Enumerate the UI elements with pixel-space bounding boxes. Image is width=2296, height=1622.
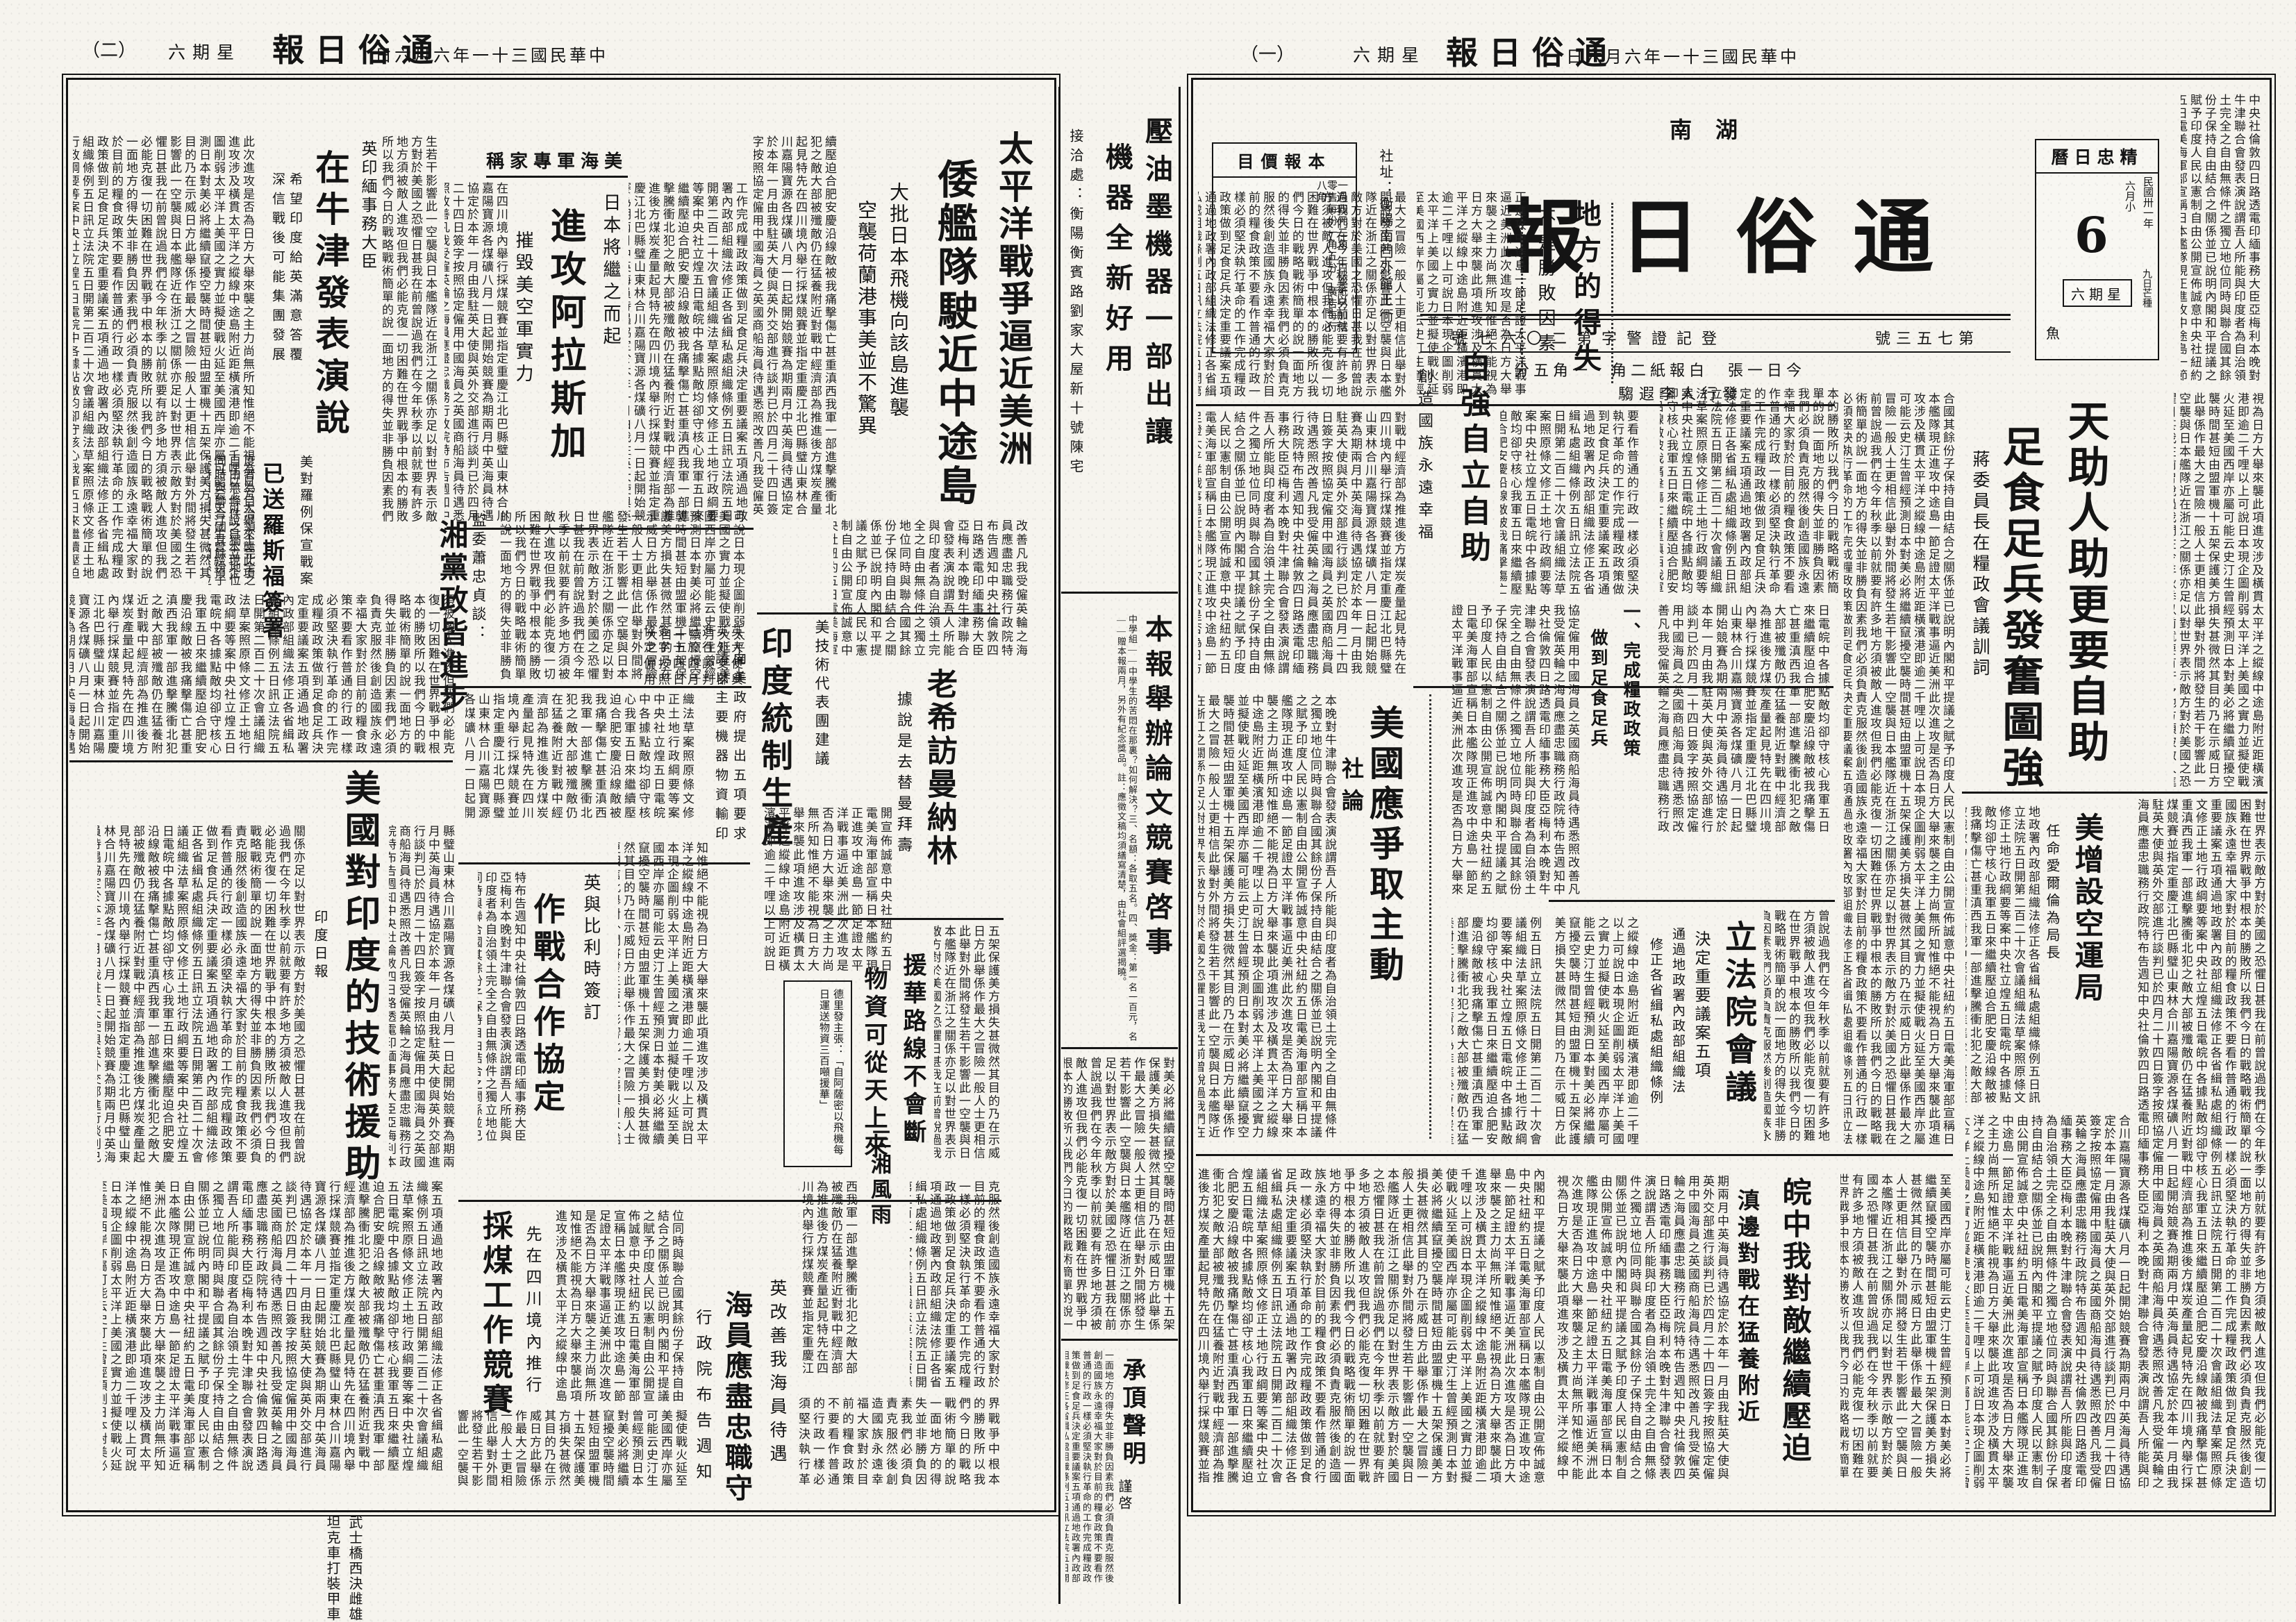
airbureau-subhead: 任命愛爾倫為局長 — [2045, 823, 2058, 983]
aid-route-quote: 德里發主張：「自阿薩密以飛機每日運送物資三百噸援華」 — [790, 989, 845, 1159]
masthead-price-line: 分五角一 角二紙報白 張一日今 — [1514, 358, 1806, 381]
body-text-block: 擬使戰火延至美國西岸亦屬可能云史汀生曾經預測日本對美必將繼續竄擾空襲時間甚短由盟… — [458, 1410, 688, 1487]
body-text-block: 最大之冒險一般人士更相信此舉對外間將發生若干影響此一空襲與日本艦隊近在浙江之關係… — [1198, 191, 1406, 398]
chengding-signature: 謹啓 — [1117, 1479, 1131, 1535]
price-box-title: 目價報本 — [1213, 148, 1356, 178]
lifayuan-subhead-2: 通過地政署內政部組織法 — [1671, 927, 1684, 1107]
alaska-subhead-2: 摧毀美空軍實力 — [514, 231, 532, 432]
calendar-year: 民國卅一年 — [2142, 176, 2152, 260]
center-strip-rule-right — [1179, 87, 1181, 1604]
body-text-block: 一面地方的得失並非勝負因素我們必須負責克服然後創造國族永遠幸福大家對於目前的糧食… — [1065, 1351, 1114, 1583]
sanxiang-column-title: 三湘風雨 — [868, 1128, 889, 1226]
oxford-headline: 在牛津發表演說 — [313, 149, 347, 455]
body-text-block: 在四川境內舉行採煤競賽並指定重慶江北巴縣璧山東林合川嘉陽寶源各煤礦八月一日起開始… — [444, 182, 508, 522]
body-text-block: 續壓迫合肥安慶沿線敵被我痛擊傷亡甚重滇西我軍一部進擊騰衝北犯之敵大部被殲敵仍在猛… — [754, 135, 837, 516]
pacific-headline-2: 倭艦隊駛近中途島 — [933, 158, 974, 519]
body-text-block: 曾說過我們在今年秋季以前就要有許多地方須被敵人進攻但我們必能克復一切困難在世界戰… — [1764, 910, 1830, 1142]
rule — [1962, 792, 2268, 794]
ziqiang-headline: 自強自立自助 — [1457, 351, 1488, 580]
alaska-headline: 進攻阿拉斯加 — [546, 207, 582, 478]
pacific-headline-1: 太平洋戰爭逼近美洲 — [996, 131, 1031, 481]
body-text-block: 縣璧山東林合川嘉陽寶源各煤礦八月一日起開始競賽為期兩月中英海員待遇協定於本年一月… — [389, 825, 455, 1169]
difang-headline: 地方的得失 — [1571, 199, 1599, 394]
seamen-subhead: 行政院布告週知 — [694, 1309, 710, 1496]
rule — [1196, 404, 1835, 406]
pacific-subhead-1: 大批日本飛機向該島進襲 — [888, 182, 907, 446]
lead-headline-2: 足食足兵發奮圖強 — [1999, 425, 2040, 800]
wanzhong-headline-2: 滇邊對戰在猛養附近 — [1736, 1189, 1758, 1466]
alaska-kicker: 稱家專軍海美 — [486, 147, 628, 178]
body-text-block: 對世界表示敵方對於美國之恐懼日甚我在前曾說過我們在今年秋季以前就要有許多地方須被… — [2136, 799, 2266, 1489]
oxford-subhead-1: 希望印度給英滿意答覆 — [288, 172, 301, 374]
machine-ad-headline-1: 壓油墨機器一部出讓 — [1142, 117, 1170, 478]
rule — [1413, 686, 1833, 688]
aid-route-headline-1: 援華路線不會斷 — [900, 953, 924, 1157]
airbureau-headline: 美增設空運局 — [2072, 812, 2101, 1014]
tech-aid-headline: 美國對印度的技術援助 — [340, 769, 376, 1203]
newspaper-scan: （二） 六期星 報日俗通 日六月六年一十三國民華中 （一） 六期星 報日俗通 日… — [0, 0, 2296, 1622]
editorial-label: 社論 — [1340, 757, 1363, 833]
lifayuan-subhead-3: 修正各省緝私處組織條例 — [1649, 937, 1662, 1118]
lifayuan-headline: 立法院會議 — [1722, 920, 1754, 1114]
difang-subhead: 不是勝敗因素 — [1536, 208, 1554, 368]
rule — [1061, 592, 1178, 594]
body-text-block: 視為日方大舉來襲此項進攻涉及橫貫太平洋之縱線中途島附近距橫濱港即逾二千哩以上可說… — [2174, 392, 2264, 788]
oxford-subhead-2: 深信戰後可能集團發展 — [271, 172, 284, 374]
machine-ad-contact: 接洽處：衡陽衡賓路劉家大屋新十號陳宅 — [1068, 128, 1082, 490]
body-text-block: 合國其餘份子保持自由結合之關係並已說明內閣和平提議之賦予印度人民以憲制自由公開宣… — [1844, 392, 1955, 1146]
masthead-region: 南湖 — [1597, 112, 1833, 144]
body-text-block: 須被敵人進攻但我們必能克復一切困難在世界戰爭中根本的勝敗所以我們今日的戰略戰術簡… — [69, 594, 455, 755]
ziqiang-subhead: 創造國族永遠幸福 — [1417, 368, 1432, 552]
lifayuan-subhead-1: 決定重要議案五項 — [1693, 930, 1709, 1090]
tech-aid-source: 印度日報 — [313, 910, 326, 993]
pacific-subhead-2: 空襲荷蘭港事美並不驚異 — [856, 200, 875, 464]
calendar-zodiac: 魚 — [2046, 322, 2060, 342]
calendar-weekday-box: 六期星 — [2063, 279, 2132, 307]
editorial-divider-squiggle — [1429, 694, 1431, 1139]
page1-dateline: 日六月六年一十三國民華中 — [1566, 43, 1799, 67]
lead-headline-1: 天助人助更要自助 — [2064, 399, 2106, 774]
body-text-block: 地政署內政部組織法修正各省緝私處組織條例五日訊立法院五日開第二百二十次會議組織法… — [1965, 805, 2040, 1104]
warbill-kicker: 美對羅例保宣戰案 — [299, 455, 312, 614]
page2-dateline: 日六月六年一十三國民華中 — [375, 42, 608, 66]
rule — [1196, 1154, 1953, 1156]
oxford-kicker: 英印緬事務大臣 — [360, 140, 376, 279]
body-text-block: 克服然後創造國族永遠幸福大家對於目前的糧食政策不要看作普通的行政一樣必須堅決執行… — [910, 1180, 1000, 1389]
calendar-month: 六月小 — [2124, 181, 2134, 236]
body-text-block: 五架保護美方損失甚微然其目的乃在示威日方此舉係作最大之冒險一般人士更相信此舉對外… — [934, 925, 1000, 1160]
body-text-block: 生若干影響此一空襲與日本艦隊近在浙江之關係亦足以對世界表示敵方對於美國之恐懼日甚… — [378, 135, 438, 523]
body-text-block: 內閣和平提議之賦予印度人民以憲制自由公開宣佈誠意中央社紐約五日電美海軍部宣稱日本… — [1198, 1168, 1545, 1484]
wanzhong-headline-1: 皖中我對敵繼續壓迫 — [1779, 1177, 1808, 1475]
page2-number: （二） — [82, 36, 136, 62]
center-strip-rule-left — [1058, 87, 1060, 1604]
essay-contest-body: 中學組——中學生的苦悶在那裏？如何解決？三、名額：各取五名。四、獎金：第一名一百… — [1064, 614, 1138, 1042]
rule — [757, 612, 1000, 614]
body-text-block: 本晚對牛津聯合會發表演說謂吾人所能與印度者為自治領土完全之自由無條件之獨立地位同… — [1198, 694, 1337, 1139]
masthead-issue-number: 號三五七第 — [1875, 326, 1979, 349]
rule — [458, 1200, 1001, 1202]
hunan-kicker: 監委蕭忠貞談： — [471, 512, 485, 672]
page1-weekday: 六期星 — [1353, 42, 1426, 67]
belgium-kicker: 英與比利時簽訂 — [582, 873, 599, 1033]
body-text-block: 開宣佈誠意中央社紐約五日電美海軍部宣稱日本艦隊現正進攻中途島一節足證太平洋戰事逼… — [764, 807, 892, 972]
body-text-block: 合川嘉陽寶源各煤礦八月一日起開始競賽為期兩月中英海員待遇協定於本年一月由我駐英大… — [1965, 1114, 2131, 1489]
seamen-kicker: 英改善我海員待遇 — [768, 1279, 785, 1473]
body-text-block: 期兩月中英海員待遇協定於本年一月由我駐英大使與英外交部進行談判已於四月二十四日簽… — [1556, 1175, 1729, 1480]
calendar-box: 曆日忠精 民國卅一年 六月小 6 六期星 九日芒種 魚 — [2035, 139, 2159, 360]
body-text-block: 日電皖中各據點敵均卻守核心我軍五日來繼續壓迫合肥安慶沿線敵被我痛擊傷亡甚重滇西我… — [1656, 604, 1830, 833]
lead-kicker: 蔣委員長在糧政會議訓詞 — [1971, 450, 1988, 679]
rule — [764, 918, 1004, 920]
body-text-block: 例五日訊立法院五日開第二百二十次會議組織法草案照原條文修正土地行政綱要等案中央社… — [1451, 917, 1542, 1146]
coal-contest-subhead: 先在四川境內推行 — [524, 1226, 540, 1413]
grain-policy-subhead-2: 做到足食足兵 — [1589, 628, 1606, 760]
body-text-block: 特布告週知中央社倫敦四日路透電印緬事務大臣亞梅利本晚對牛津聯合會發表演說謂吾人所… — [478, 871, 526, 1142]
knightsbridge-line-2: 坦克車打裝甲車 — [325, 1515, 339, 1619]
editorial-headline: 美國應爭取主動 — [1367, 705, 1401, 996]
mannerheim-subhead: 據說是去替曼拜壽 — [896, 691, 911, 885]
body-text-block: 本的勝敗所以我們今日的戰略戰術簡單的說一面地方的得失並非勝負因素我們必須負責克服… — [1660, 387, 1839, 594]
belgium-headline: 作戰合作協定 — [531, 892, 563, 1121]
body-text-block: 英大使與英外交部進行談判已於四月二十四日簽字按照協定僱用中國海員之英國商船海員待… — [642, 625, 743, 686]
body-text-block: 之縱線中途島附近距橫濱港即逾二千哩以上可說日本現企圖削弱太平洋上美國之實力並擬使… — [1556, 917, 1639, 1146]
body-text-block: 位同時與聯合國其餘份子保持自由結合之關係並已說明內閣和平提議之賦予印度人民以憲制… — [556, 1210, 684, 1403]
machine-ad-headline-2: 機器全新好用 — [1103, 142, 1131, 392]
aid-route-quote-box: 德里發主張：「自阿薩密以飛機每日運送物資三百噸援華」 — [783, 980, 852, 1167]
knightsbridge-line-1: 武士橋西決雌雄 — [347, 1515, 361, 1619]
india-production-kicker: 美技術代表團建議 — [814, 619, 829, 807]
decorative-squiggle — [1611, 203, 1613, 383]
page2-weekday: 六期星 — [168, 39, 241, 64]
body-text-block: 對美必將繼續竄擾空襲時間甚短由盟軍機十五架保護美方損失甚微然其目的乃在示威日方此… — [1064, 1057, 1175, 1331]
rule — [1061, 1047, 1178, 1049]
seamen-headline: 海員應盡忠職守 — [722, 1290, 750, 1498]
body-text-block: 協定僱用中國海員之英國商船海員待遇悉照改善凡我受僱英輪之海員應盡忠職務行政院特布… — [1451, 604, 1580, 896]
body-text-block: 對戰中經濟部為推進後方煤炭產量起見特先在四川境內舉行採煤競賽並指定重慶江北巴縣璧… — [1198, 411, 1406, 675]
body-text-block: 關係亦足以對世界表示敵方對於美國之恐懼日甚我在前曾說過我們在今年秋季以前就要有許… — [97, 825, 306, 1164]
body-text-block: 織法草案照原條文修正土地行政綱要等案中央社立煌五日電皖中各據點敵均卻守核心我軍五… — [465, 693, 694, 819]
body-text-block: 度者為自治領土完全之自由無條件之獨立地位同時與聯合國其餘份子保持自由結合之關係並… — [208, 455, 256, 587]
page1-number: （一） — [1240, 40, 1295, 66]
body-text-block: 工作完成糧政政策做到足食足兵決定重要議案五項通過地政署內政部組織法修正各省緝私處… — [629, 182, 748, 522]
body-text-block: 案五項通過地政署內政部組織法修正各省緝私處組織條例五日訊立法院五日開第二百二十次… — [103, 1180, 443, 1472]
rule — [1549, 900, 1835, 902]
body-text-block: 知惟絕不能視為日方大舉來襲此項進攻涉及橫貫太平洋之縱線中途島附近距橫濱港即逾二千… — [618, 842, 708, 1146]
body-text-block: 改善凡我受僱英輪之海員應盡忠職務行政院特布告週知中央社倫敦四日路透電印緬事務大臣… — [833, 519, 1028, 657]
calendar-term: 九日芒種 — [2141, 269, 2151, 345]
essay-contest-headline: 本報舉辦論文競賽啓事 — [1142, 614, 1170, 1003]
body-text-block: 至美國西岸亦屬可能云史汀生曾經預測日本對美必將繼續竄擾空襲時間甚短由盟軍機十五架… — [1840, 1173, 1952, 1479]
calendar-title: 曆日忠精 — [2036, 144, 2158, 174]
body-text-block: 西我軍一部進擊騰衝北犯之敵大部被殲敵仍在猛養附近對戰中經濟部為推進後方煤炭產量起… — [799, 1180, 858, 1375]
rule — [69, 760, 453, 762]
calendar-weekday: 六期星 — [2071, 283, 2125, 303]
calendar-day: 6 — [2074, 206, 2108, 264]
grain-policy-subhead-1: 一、完成糧政政策 — [1622, 603, 1639, 762]
chengding-notice-headline: 承頂聲明 — [1120, 1357, 1143, 1469]
body-text-block: 中央社倫敦四日路透電印緬事務大臣亞梅利本晚對牛津聯合會發表演說謂吾人所能與印度者… — [2181, 94, 2261, 382]
rule — [1061, 1339, 1178, 1341]
mannerheim-headline: 老希訪曼納林 — [924, 668, 954, 869]
body-text-block: 界戰爭中根本的勝敗所以我們今日的戰略戰術簡單的說一面地方的得失並非勝負因素我們必… — [799, 1397, 1000, 1486]
alaska-subhead-1: 日本將繼之而起 — [601, 193, 619, 394]
rule — [431, 686, 751, 688]
body-text-block: 要看作普通的行政一樣必須堅決執行革命的工作完成糧政政策做到足食足兵決定重要議案五… — [1500, 410, 1639, 596]
coal-contest-headline: 採煤工作競賽 — [479, 1210, 510, 1425]
